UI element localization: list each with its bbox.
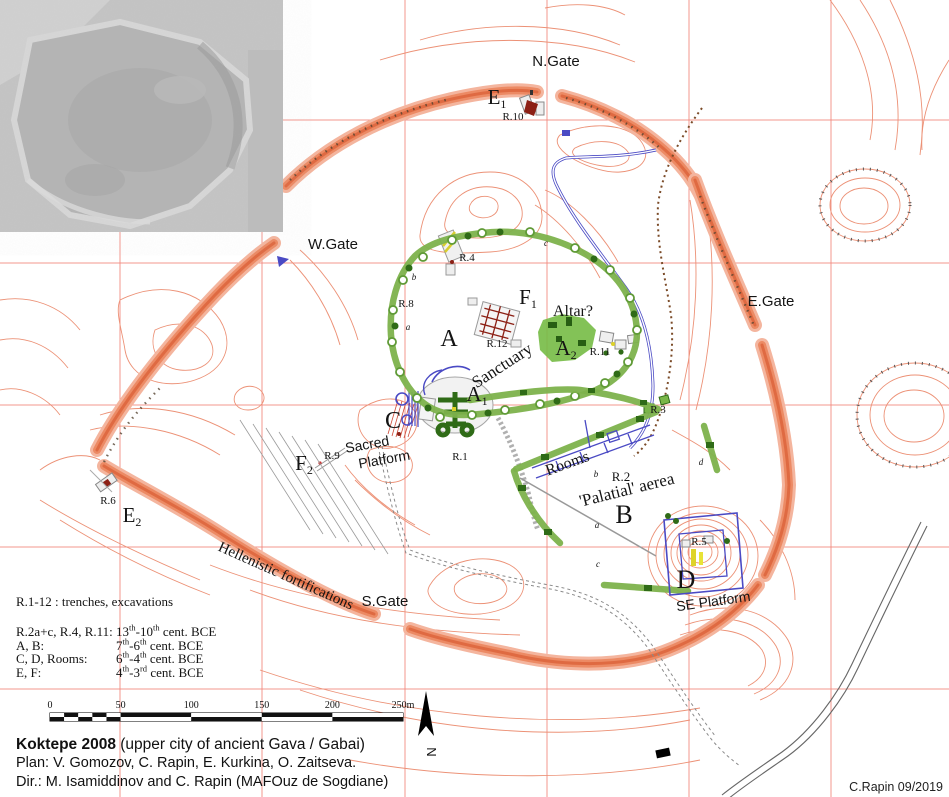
scale-tick-label: 150 — [254, 700, 269, 711]
scale-tick-label: 100 — [184, 700, 199, 711]
map-label-area-d: D — [677, 565, 696, 594]
scale-tick-label: 50 — [116, 700, 126, 711]
scale-bar-segment — [92, 713, 106, 717]
scale-tick-label: 250m — [392, 700, 415, 711]
map-label-north-label: N — [424, 747, 439, 756]
scale-bar-segment — [78, 713, 92, 717]
scale-bar-segment — [262, 717, 333, 721]
scale-bar-segment — [92, 717, 106, 721]
map-label-area-e2: E2 — [123, 503, 142, 529]
plan-credit-line: Plan: V. Gomozov, C. Rapin, E. Kurkina, … — [16, 754, 388, 773]
legend-intro: R.1-12 : trenches, excavations — [16, 594, 376, 610]
aerial-photo-inset — [0, 0, 283, 232]
scale-tick-label: 200 — [325, 700, 340, 711]
legend-row: C, D, Rooms:6th-4th cent. BCE — [16, 652, 376, 666]
map-title-rest: (upper city of ancient Gava / Gabai) — [116, 736, 365, 753]
koktepe-site-plan: N.GateW.GateE.GateS.GateE1R.10R.4R.8F1AR… — [0, 0, 949, 797]
black-building — [655, 748, 670, 759]
road-line-1 — [722, 522, 921, 795]
scale-bar-segment — [50, 713, 64, 717]
map-label-area-a: A — [440, 326, 458, 352]
map-label-minor-c1: c — [544, 238, 548, 248]
director-credit-line: Dir.: M. Isamiddinov and C. Rapin (MAFOu… — [16, 773, 388, 792]
map-label-w-gate: W.Gate — [308, 236, 358, 253]
legend-row-label: R.2a+c, R.4, R.11: — [16, 625, 116, 639]
north-arrow — [418, 691, 434, 736]
map-label-area-f1: F1 — [519, 285, 537, 311]
map-label-trench-r5: R.5 — [691, 536, 707, 548]
scale-tick-label: 0 — [48, 700, 53, 711]
map-label-trench-r6: R.6 — [100, 495, 116, 507]
scale-bar: 050100150200250m — [48, 700, 415, 721]
legend-row: E, F:4th-3rd cent. BCE — [16, 666, 376, 680]
scale-bar-segment — [262, 713, 333, 717]
blue-mark-wgate — [277, 256, 289, 267]
legend-row: R.2a+c, R.4, R.11:13th-10th cent. BCE — [16, 625, 376, 639]
scale-bar-segment — [191, 717, 262, 721]
map-label-trench-r1: R.1 — [452, 451, 468, 463]
map-label-n-gate: N.Gate — [532, 53, 580, 70]
scale-bar-segment — [106, 713, 120, 717]
rampart-west — [97, 243, 274, 462]
map-label-area-f2: F2 — [295, 451, 313, 477]
legend-row-era: 4th-3rd cent. BCE — [116, 666, 204, 680]
scale-bar-segment — [78, 717, 92, 721]
map-label-trench-r3: R.3 — [650, 404, 666, 416]
map-label-minor-b1: b — [412, 272, 417, 282]
map-label-trench-r10: R.10 — [502, 111, 524, 123]
blue-mark-n — [562, 130, 570, 136]
map-label-altar: Altar? — [553, 303, 593, 320]
map-label-area-b: B — [615, 500, 632, 529]
map-label-trench-r11: R.11 — [590, 346, 611, 358]
map-label-trench-r4: R.4 — [459, 252, 475, 264]
map-title-bold: Koktepe 2008 — [16, 736, 116, 753]
scale-bar-segment — [64, 713, 78, 717]
legend-rows: R.2a+c, R.4, R.11:13th-10th cent. BCEA, … — [16, 625, 376, 679]
map-title: Koktepe 2008 (upper city of ancient Gava… — [16, 735, 388, 754]
map-label-minor-a2: a — [595, 520, 600, 530]
road-line-2 — [728, 526, 927, 797]
author-date-credit: C.Rapin 09/2019 — [849, 780, 943, 794]
legend: R.1-12 : trenches, excavations R.2a+c, R… — [16, 594, 376, 679]
scale-bar-segment — [121, 717, 192, 721]
scale-bar-segment — [50, 717, 64, 721]
legend-row-label: A, B: — [16, 639, 116, 653]
map-label-trench-r9: R.9 — [324, 450, 340, 462]
scale-bar-segment — [106, 717, 120, 721]
scale-bar-segment — [332, 713, 403, 717]
scale-bar-segment — [191, 713, 262, 717]
map-label-minor-b2: b — [594, 469, 599, 479]
scale-bar-segment — [332, 717, 403, 721]
map-label-minor-a1: a — [406, 322, 411, 332]
legend-row-label: C, D, Rooms: — [16, 652, 116, 666]
legend-row-era: 13th-10th cent. BCE — [116, 625, 216, 639]
scale-bar-segment — [121, 713, 192, 717]
map-label-trench-r12: R.12 — [486, 338, 507, 350]
scale-bar-segment — [64, 717, 78, 721]
legend-row-label: E, F: — [16, 666, 116, 680]
map-label-e-gate: E.Gate — [748, 293, 795, 310]
map-label-area-c: C — [385, 408, 401, 434]
title-block: Koktepe 2008 (upper city of ancient Gava… — [16, 735, 388, 792]
map-label-minor-d1: d — [699, 457, 704, 467]
e-fort-ticks — [857, 363, 949, 467]
map-label-trench-r8: R.8 — [398, 298, 414, 310]
map-label-minor-c2: c — [596, 559, 600, 569]
